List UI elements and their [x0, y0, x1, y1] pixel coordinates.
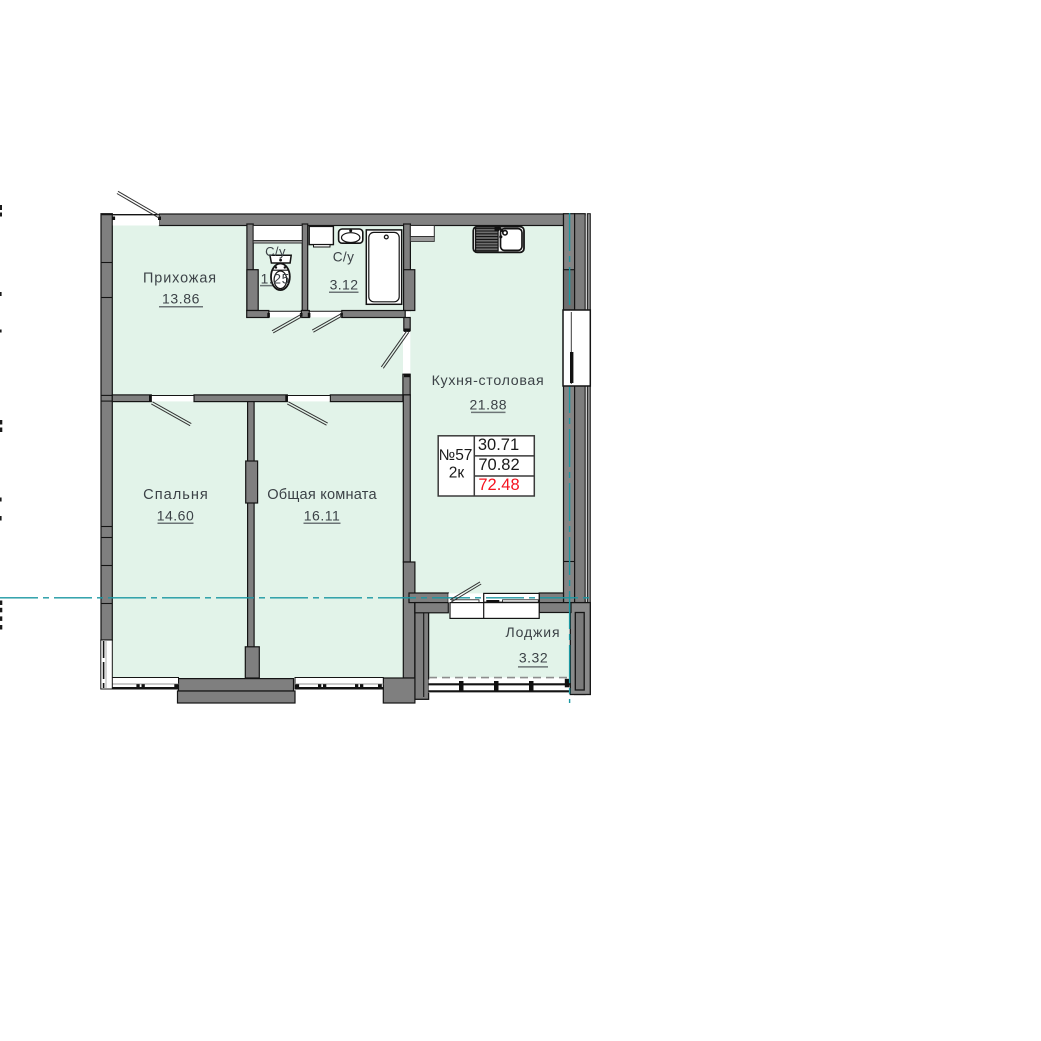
svg-text:16.11: 16.11 — [304, 507, 341, 523]
svg-text:Общая комната: Общая комната — [267, 487, 377, 503]
svg-text:Спальня: Спальня — [143, 487, 209, 503]
svg-text:С/у: С/у — [333, 250, 355, 265]
svg-text:72.48: 72.48 — [478, 476, 519, 494]
svg-text:30.71: 30.71 — [478, 436, 519, 454]
svg-text:2к: 2к — [449, 465, 465, 482]
svg-text:14.60: 14.60 — [157, 507, 195, 523]
svg-text:3.12: 3.12 — [330, 276, 359, 292]
svg-text:С/у: С/у — [265, 244, 286, 259]
svg-text:70.82: 70.82 — [478, 456, 519, 474]
svg-text:№57: №57 — [439, 447, 473, 464]
svg-text:Прихожая: Прихожая — [143, 271, 217, 287]
svg-text:Лоджия: Лоджия — [505, 624, 560, 640]
svg-text:Кухня-столовая: Кухня-столовая — [432, 373, 545, 389]
svg-text:3.32: 3.32 — [519, 650, 548, 666]
svg-text:21.88: 21.88 — [470, 397, 508, 413]
svg-text:13.86: 13.86 — [162, 291, 200, 307]
svg-text:1.25: 1.25 — [261, 271, 290, 286]
